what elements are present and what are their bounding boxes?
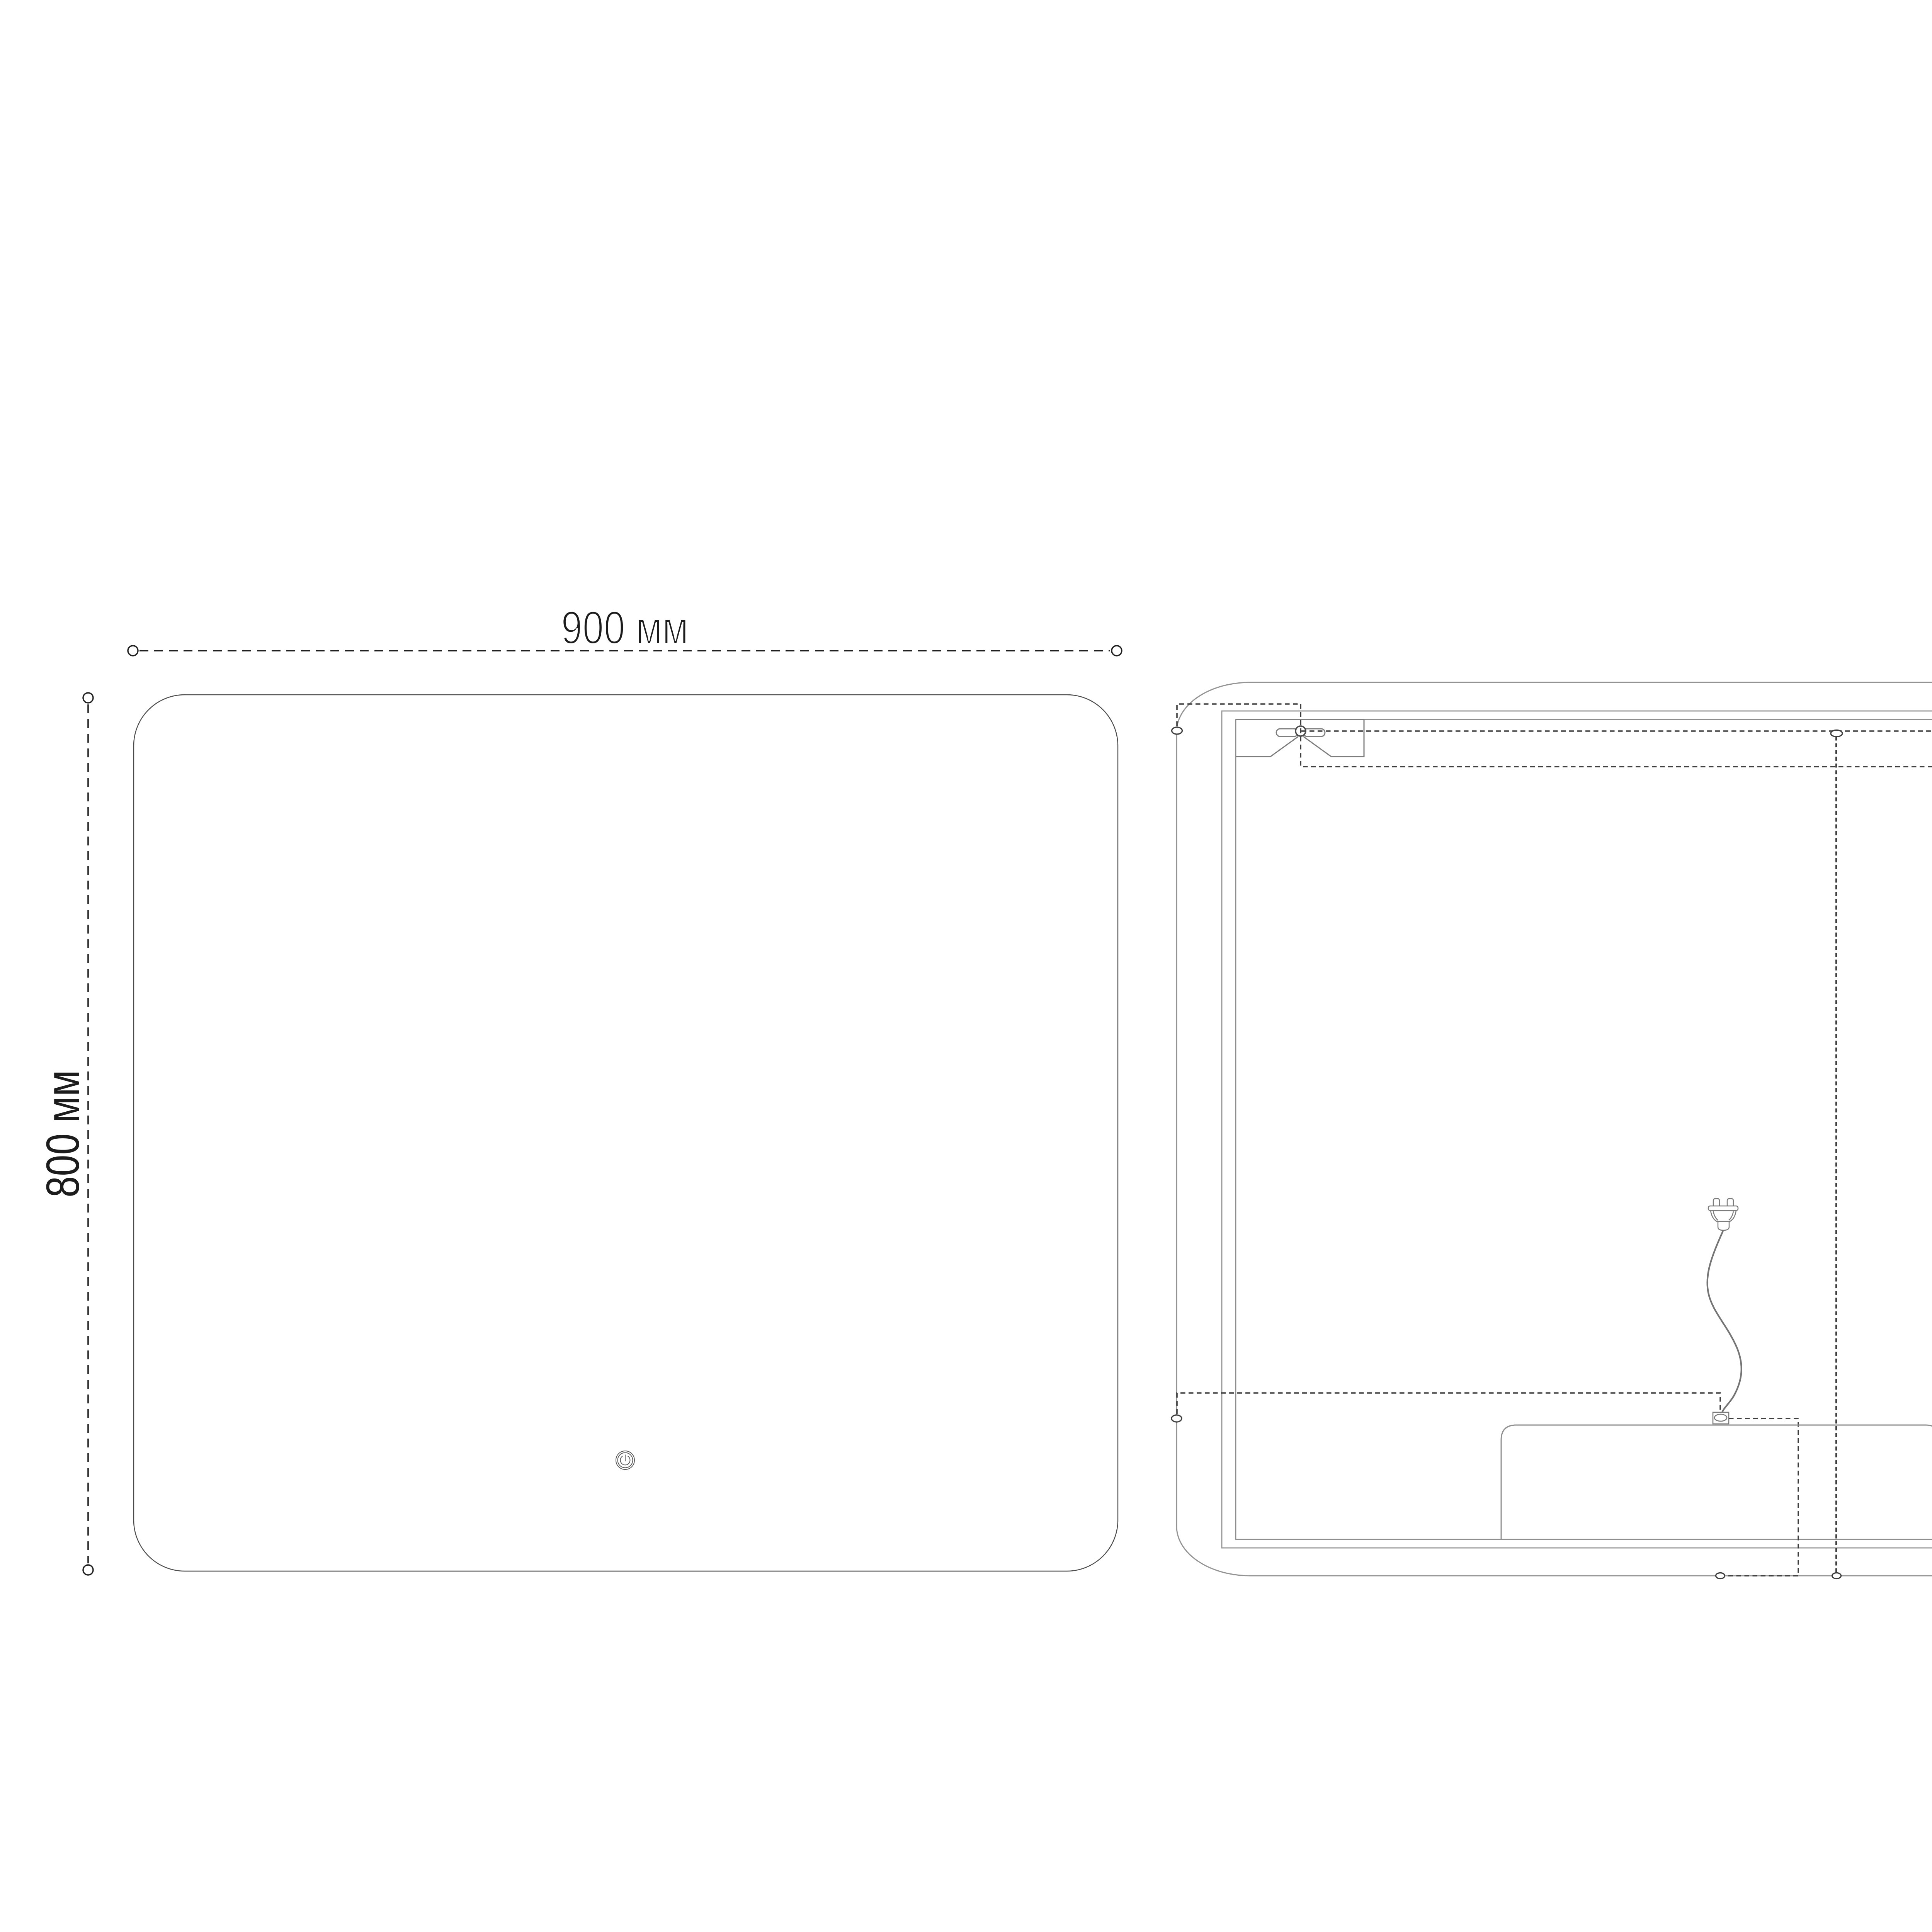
svg-text:900 мм: 900 мм — [561, 601, 689, 654]
svg-text:800 мм: 800 мм — [36, 1070, 89, 1197]
